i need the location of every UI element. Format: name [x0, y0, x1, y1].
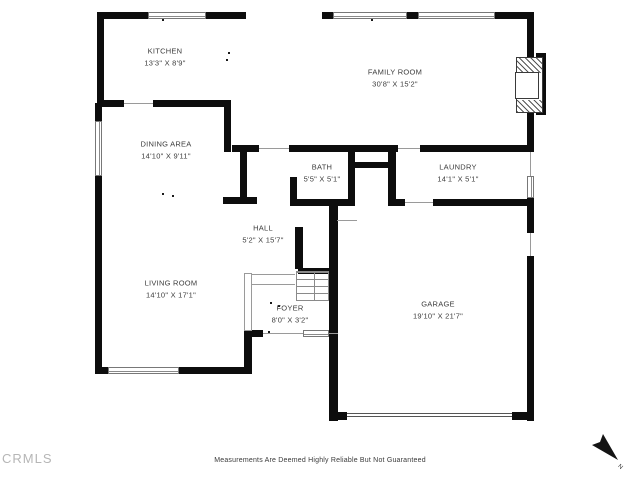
stair-divider: [314, 272, 315, 300]
wall-segment: [289, 145, 398, 152]
opening-line: [329, 333, 338, 334]
wall-segment: [527, 197, 534, 233]
plan-dot: [162, 193, 164, 195]
room-label-family-room: FAMILY ROOM 30'8" X 15'2": [368, 66, 422, 89]
plan-dot: [172, 195, 174, 197]
wall-segment: [329, 205, 338, 421]
window: [418, 12, 495, 19]
opening-line: [263, 333, 303, 334]
room-name: BATH: [304, 161, 341, 173]
opening-line: [259, 148, 289, 149]
wall-segment: [95, 103, 102, 122]
plan-dot: [371, 19, 373, 21]
room-label-dining-area: DINING AREA 14'10" X 9'11": [140, 138, 191, 161]
railing-line: [252, 284, 295, 285]
disclaimer-text: Measurements Are Deemed Highly Reliable …: [0, 457, 640, 464]
room-name: DINING AREA: [140, 138, 191, 150]
window: [333, 12, 407, 19]
wall-segment: [178, 367, 252, 374]
wall-segment: [240, 152, 247, 198]
room-label-living-room: LIVING ROOM 14'10" X 17'1": [145, 277, 198, 300]
wall-segment: [97, 12, 104, 107]
window: [108, 367, 179, 374]
north-arrow-icon: N: [588, 430, 630, 472]
room-name: HALL: [242, 222, 283, 234]
wall-segment: [252, 330, 263, 337]
room-label-laundry: LAUNDRY 14'1" X 5'1": [437, 161, 478, 184]
opening-line: [398, 148, 420, 149]
fireplace-hatch: [517, 58, 542, 73]
opening-line: [530, 233, 531, 256]
garage-step-line: [337, 220, 357, 221]
room-name: LIVING ROOM: [145, 277, 198, 289]
wall-segment: [329, 412, 347, 420]
room-label-kitchen: KITCHEN 13'3" X 8'9": [144, 45, 185, 68]
plan-dot: [162, 19, 164, 21]
plan-dot: [268, 331, 270, 333]
garage-door: [347, 413, 512, 417]
fireplace: [516, 57, 543, 113]
opening-line: [124, 103, 153, 104]
wall-segment: [527, 12, 534, 57]
wall-segment: [223, 197, 257, 204]
staircase: [296, 271, 329, 301]
plan-dot: [226, 59, 228, 61]
room-name: KITCHEN: [144, 45, 185, 57]
opening-line: [530, 152, 531, 176]
room-name: LAUNDRY: [437, 161, 478, 173]
wall-segment: [388, 145, 396, 206]
room-label-garage: GARAGE 19'10" X 21'7": [413, 298, 463, 321]
wall-segment: [97, 12, 149, 19]
wall-segment: [433, 199, 534, 206]
room-dims: 19'10" X 21'7": [413, 310, 463, 322]
wall-segment: [153, 100, 228, 107]
wall-segment: [95, 175, 102, 374]
wall-segment: [355, 162, 388, 168]
front-door: [303, 330, 329, 337]
wall-segment: [420, 145, 534, 152]
window: [148, 12, 206, 19]
room-label-bath: BATH 5'5" X 5'1": [304, 161, 341, 184]
room-label-hall: HALL 5'2" X 15'7": [242, 222, 283, 245]
north-arrow-shape: [592, 434, 618, 460]
room-dims: 5'2" X 15'7": [242, 234, 283, 246]
window: [95, 121, 102, 176]
window: [527, 176, 534, 198]
firebox: [515, 72, 539, 99]
fireplace-hatch: [517, 100, 542, 112]
room-dims: 13'3" X 8'9": [144, 57, 185, 69]
railing-line: [252, 274, 295, 275]
wall-segment: [95, 367, 109, 374]
wall-segment: [205, 12, 246, 19]
room-dims: 30'8" X 15'2": [368, 78, 422, 90]
room-name: GARAGE: [413, 298, 463, 310]
wall-segment: [527, 256, 534, 421]
wall-segment: [232, 145, 259, 152]
wall-segment: [224, 100, 231, 152]
room-dims: 14'10" X 9'11": [140, 150, 191, 162]
room-dims: 8'0" X 3'2": [272, 314, 309, 326]
room-dims: 14'10" X 17'1": [145, 289, 198, 301]
plan-dot: [228, 52, 230, 54]
north-label: N: [616, 464, 623, 471]
room-dims: 14'1" X 5'1": [437, 173, 478, 185]
foyer-closet: [244, 273, 252, 331]
opening-line: [405, 202, 433, 203]
floor-plan: KITCHEN 13'3" X 8'9" FAMILY ROOM 30'8" X…: [0, 0, 640, 480]
wall-segment: [348, 151, 355, 206]
room-name: FOYER: [272, 302, 309, 314]
room-name: FAMILY ROOM: [368, 66, 422, 78]
room-dims: 5'5" X 5'1": [304, 173, 341, 185]
wall-segment: [295, 227, 303, 269]
wall-segment: [295, 199, 353, 206]
wall-segment: [388, 199, 405, 206]
room-label-foyer: FOYER 8'0" X 3'2": [272, 302, 309, 325]
wall-segment: [244, 331, 252, 374]
